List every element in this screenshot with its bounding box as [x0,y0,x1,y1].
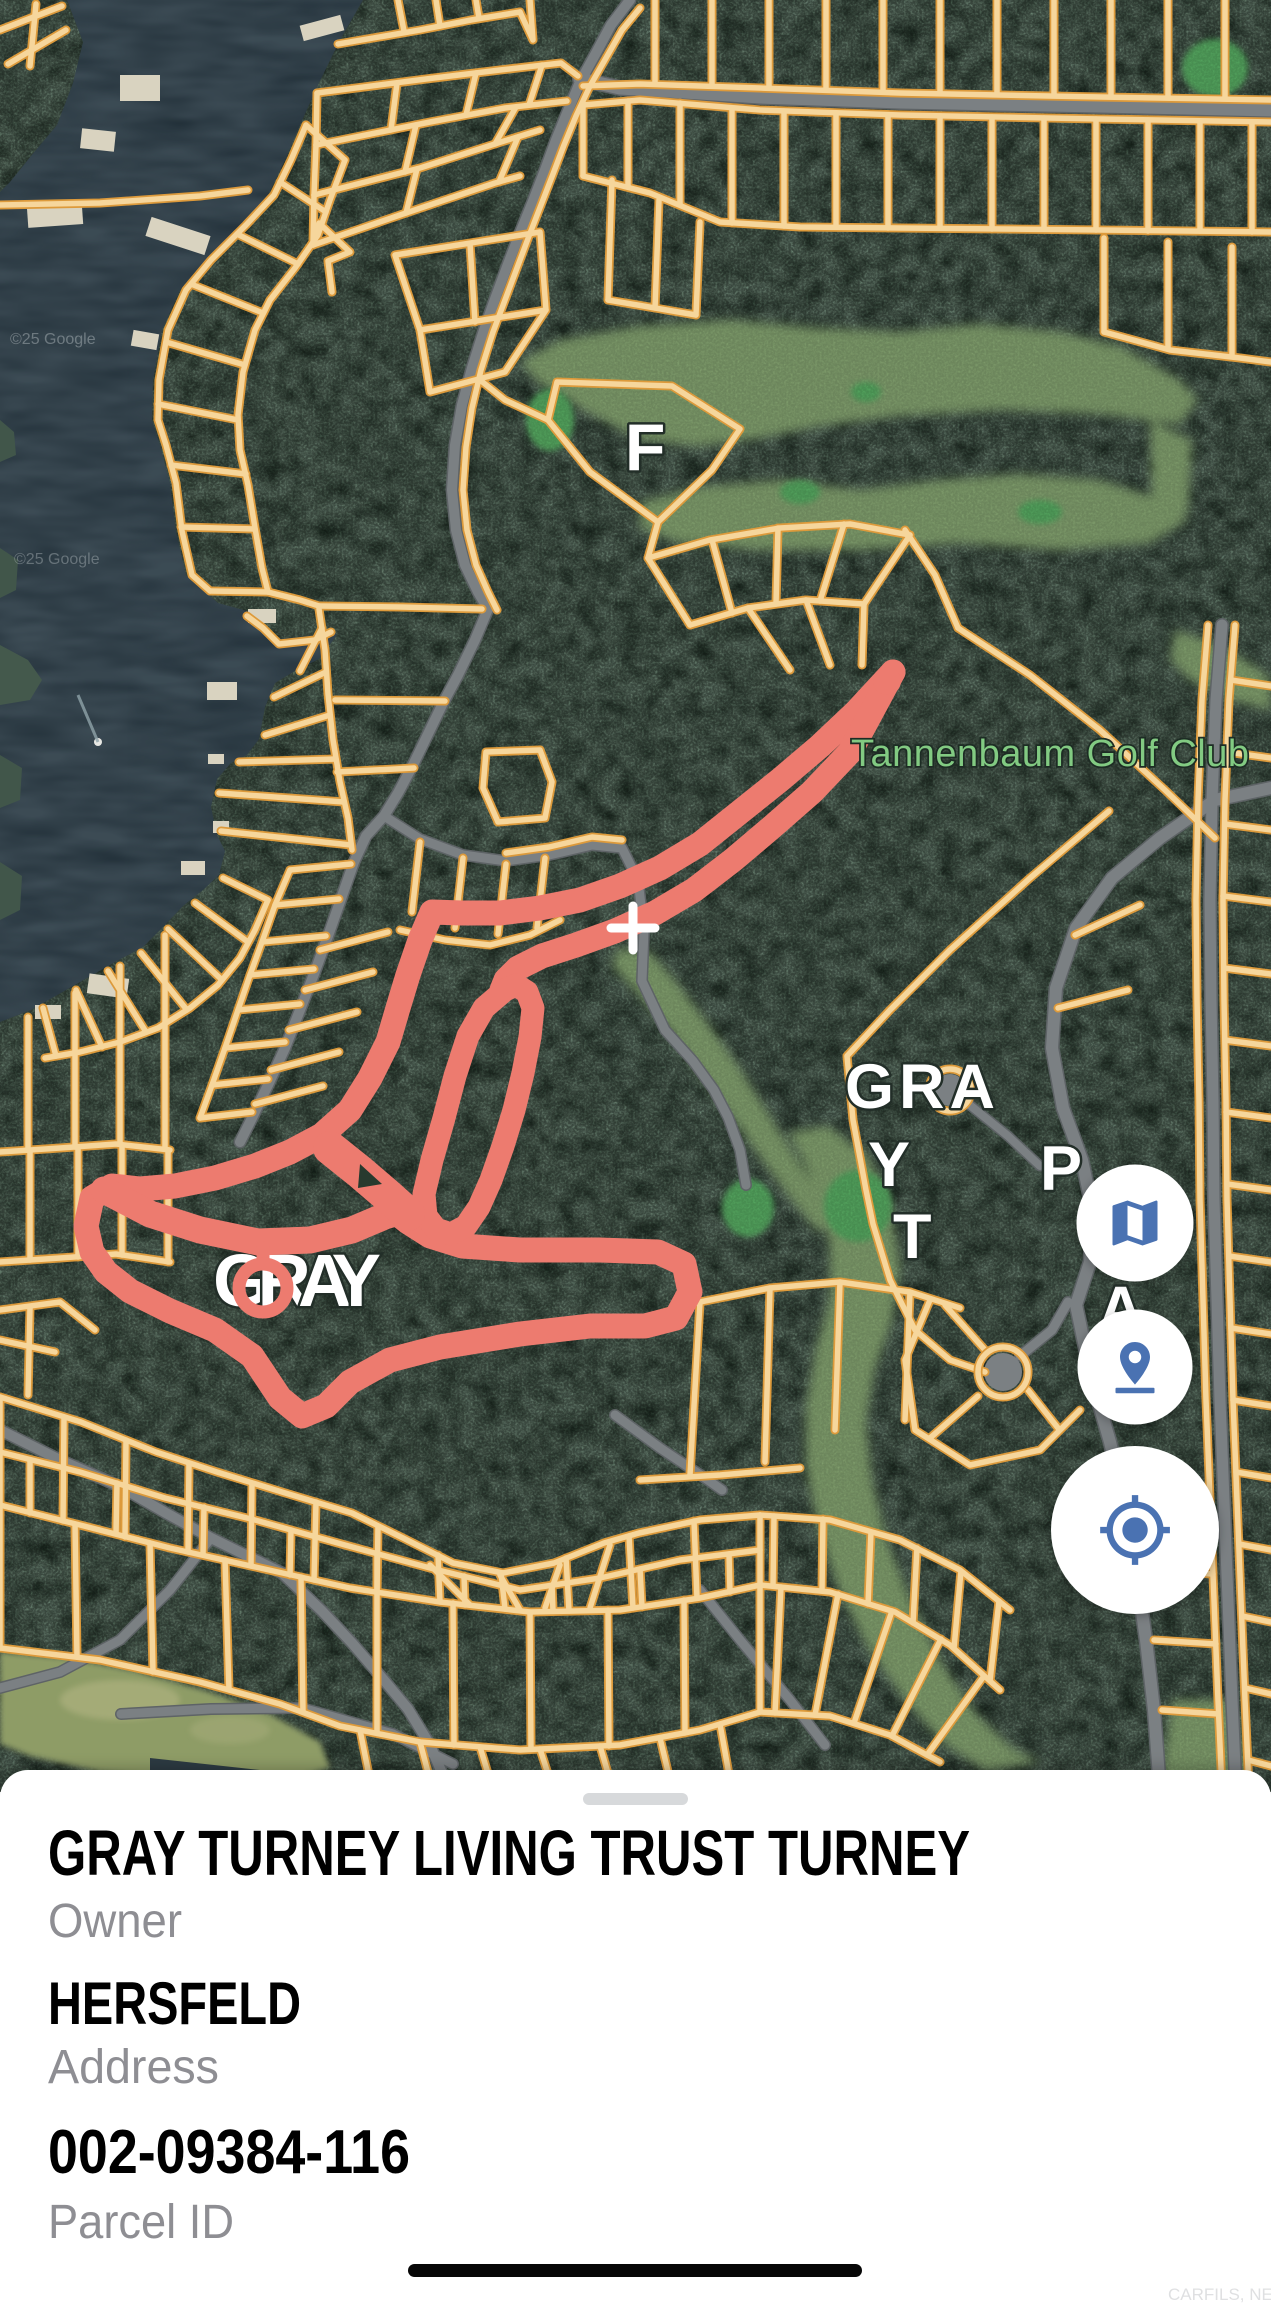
svg-text:©25 Google: ©25 Google [14,551,100,568]
svg-text:Owner: Owner [48,1895,182,1948]
svg-text:T: T [893,1202,931,1272]
svg-text:GRAY TURNEY LIVING TRUST TURNE: GRAY TURNEY LIVING TRUST TURNEY [48,1817,970,1889]
svg-text:Address: Address [48,2041,219,2094]
svg-text:©25 Google: ©25 Google [10,331,96,348]
svg-text:GRA: GRA [845,1052,995,1122]
svg-text:Parcel ID: Parcel ID [48,2196,234,2249]
svg-text:002-09384-116: 002-09384-116 [48,2118,410,2187]
svg-text:Tannenbaum Golf Club: Tannenbaum Golf Club [851,733,1249,775]
svg-text:P: P [1040,1134,1082,1204]
svg-text:HERSFELD: HERSFELD [48,1970,301,2037]
svg-text:CARFILS, NE: CARFILS, NE [1168,2285,1271,2304]
svg-text:F: F [625,410,665,484]
svg-text:Y: Y [868,1130,910,1200]
